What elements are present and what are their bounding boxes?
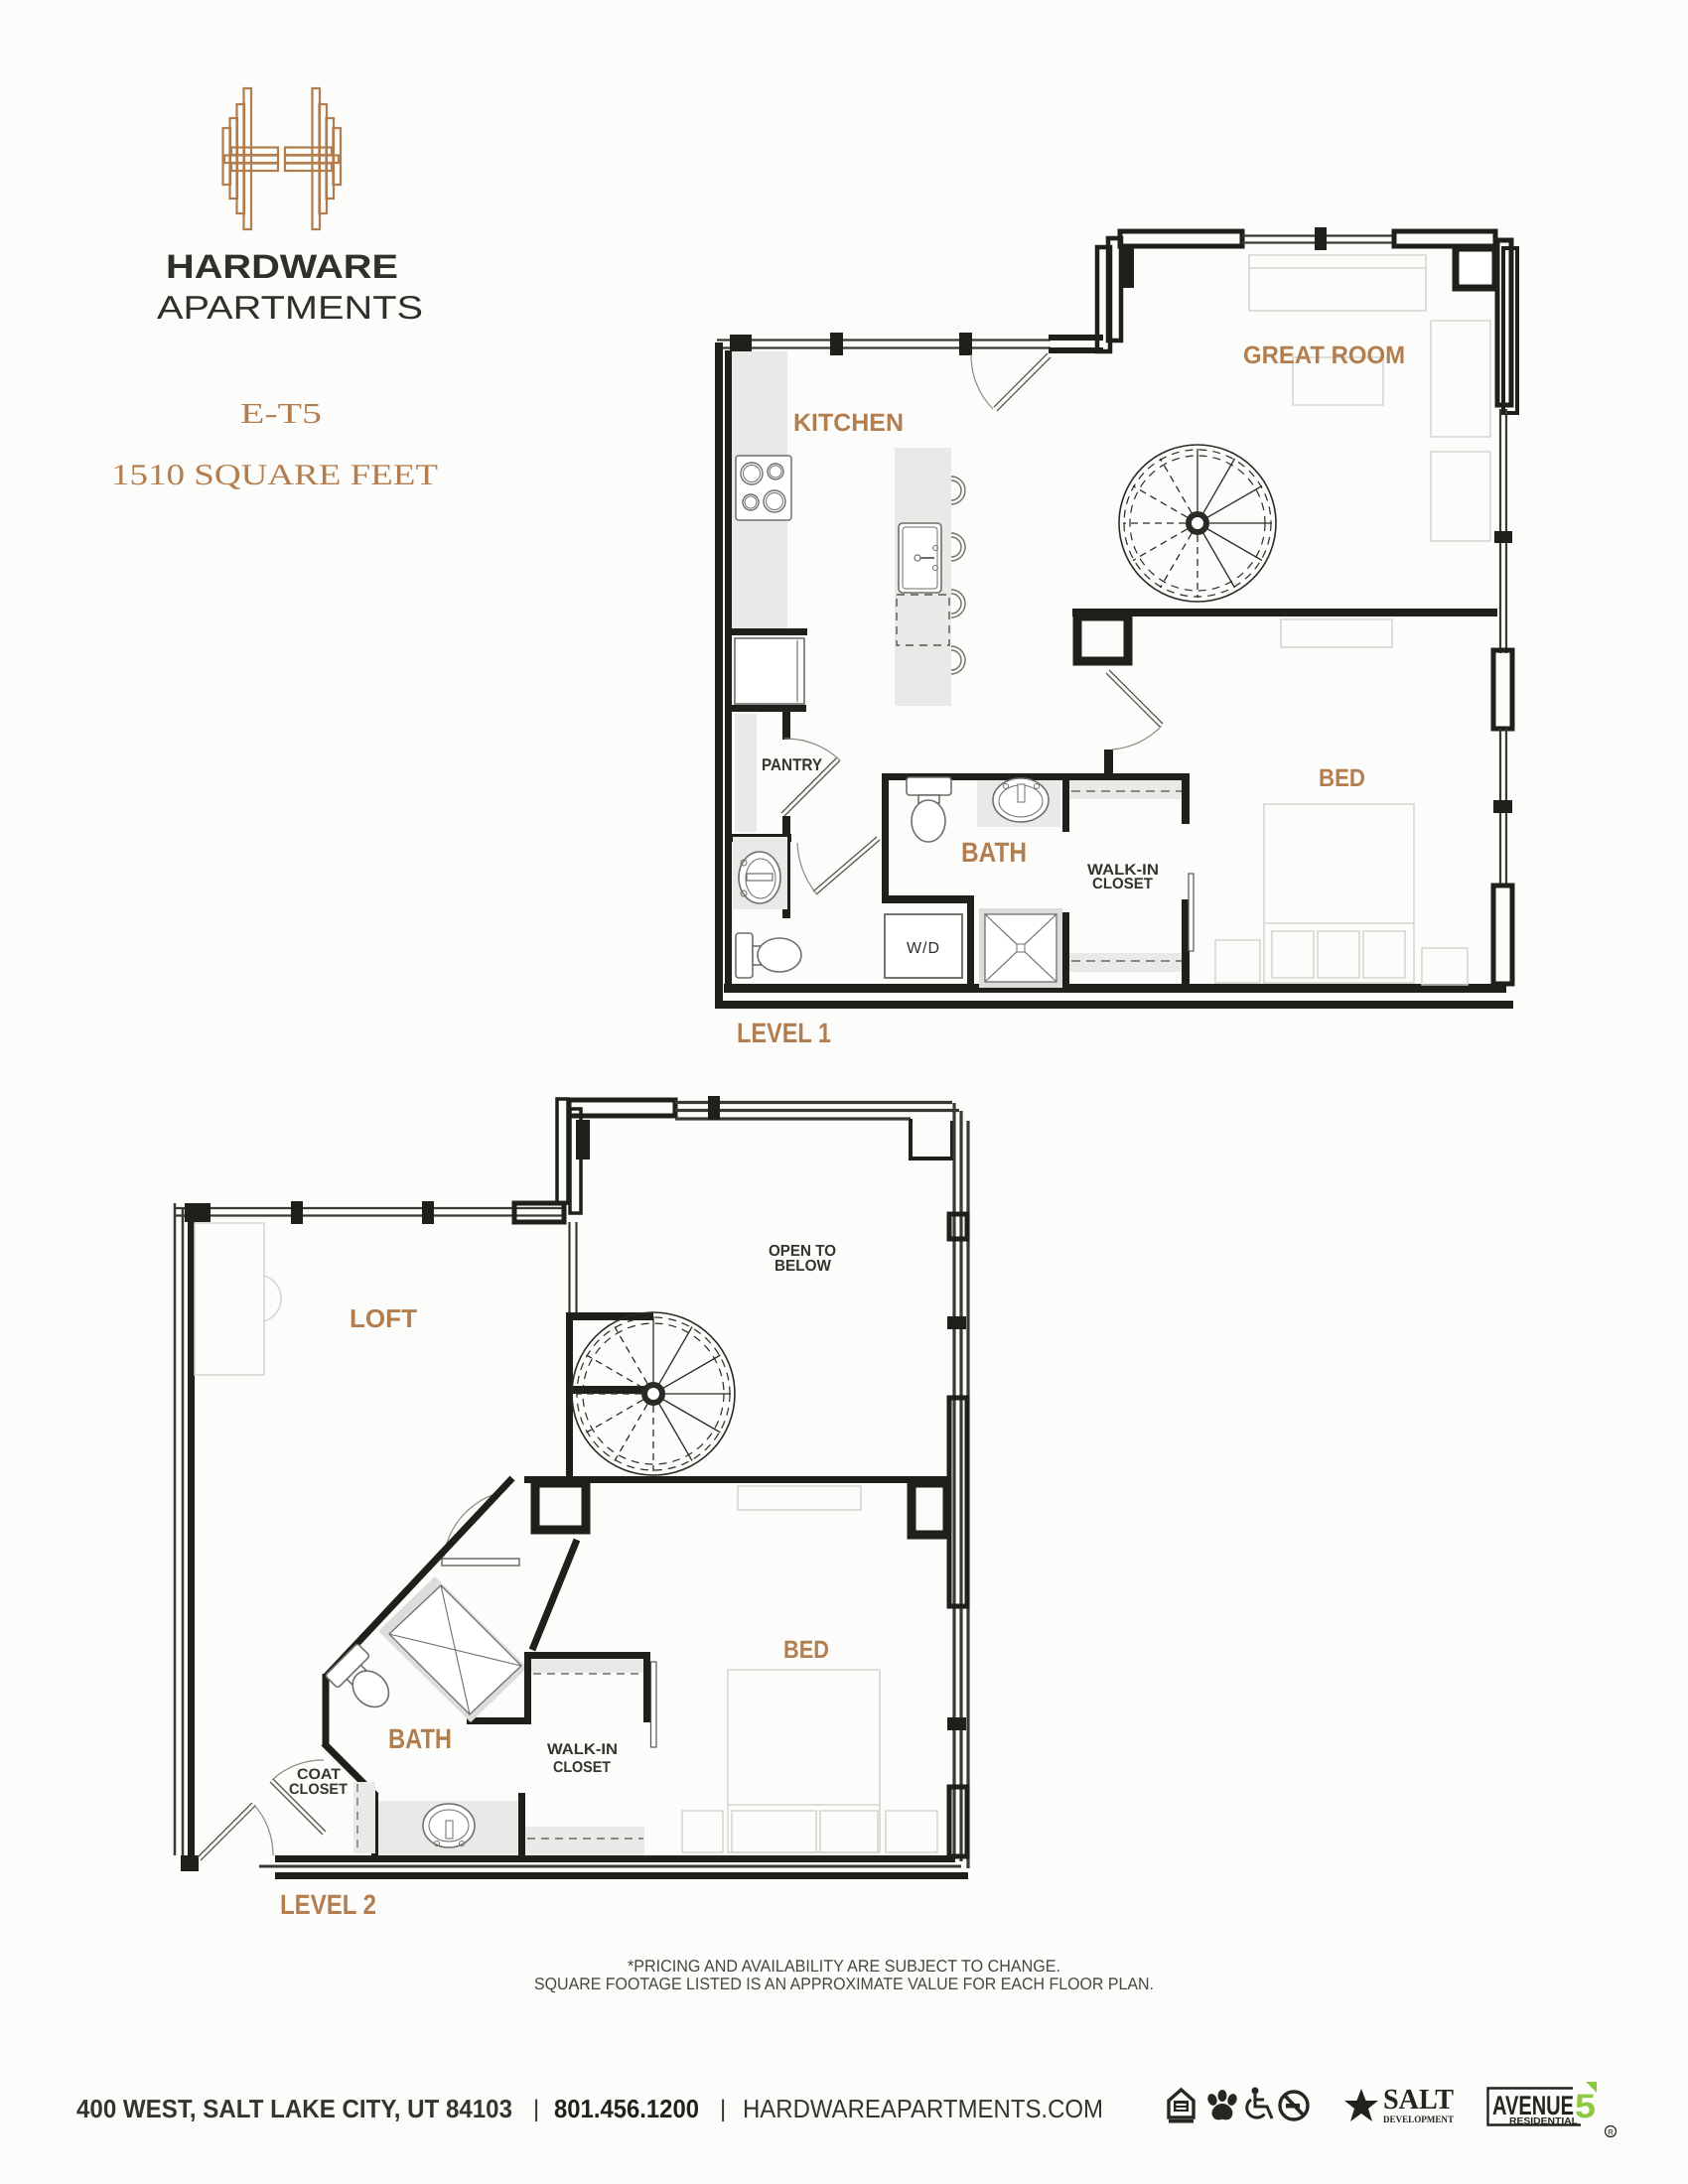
svg-text:RESIDENTIAL: RESIDENTIAL — [1509, 2116, 1578, 2127]
svg-text:*PRICING AND AVAILABILITY ARE: *PRICING AND AVAILABILITY ARE SUBJECT TO… — [628, 1957, 1060, 1976]
svg-text:BED: BED — [1319, 764, 1365, 792]
svg-text:LEVEL 1: LEVEL 1 — [737, 1018, 831, 1048]
svg-text:HARDWARE: HARDWARE — [166, 248, 398, 286]
svg-text:400 WEST, SALT LAKE CITY, UT 8: 400 WEST, SALT LAKE CITY, UT 84103 — [76, 2094, 512, 2123]
svg-text:DEVELOPMENT: DEVELOPMENT — [1383, 2115, 1454, 2125]
svg-text:BATH: BATH — [961, 837, 1027, 868]
svg-text:|: | — [533, 2096, 539, 2122]
svg-text:HARDWAREAPARTMENTS.COM: HARDWAREAPARTMENTS.COM — [743, 2094, 1103, 2123]
svg-text:APARTMENTS: APARTMENTS — [157, 289, 423, 326]
svg-text:LEVEL 2: LEVEL 2 — [280, 1889, 376, 1920]
svg-text:CLOSET: CLOSET — [553, 1759, 611, 1776]
svg-text:BATH: BATH — [388, 1723, 452, 1754]
svg-text:BED: BED — [783, 1636, 829, 1664]
svg-text:801.456.1200: 801.456.1200 — [554, 2094, 699, 2123]
svg-text:CLOSET: CLOSET — [289, 1781, 348, 1798]
svg-text:E-T5: E-T5 — [240, 398, 322, 430]
svg-text:5: 5 — [1575, 2088, 1596, 2125]
svg-text:PANTRY: PANTRY — [762, 755, 823, 774]
svg-text:LOFT: LOFT — [350, 1303, 417, 1333]
svg-text:BELOW: BELOW — [774, 1258, 832, 1275]
svg-text:R: R — [1608, 2128, 1614, 2137]
svg-text:GREAT ROOM: GREAT ROOM — [1243, 341, 1405, 369]
svg-text:SQUARE FOOTAGE LISTED IS AN AP: SQUARE FOOTAGE LISTED IS AN APPROXIMATE … — [534, 1975, 1154, 1993]
svg-text:|: | — [720, 2096, 726, 2122]
svg-text:KITCHEN: KITCHEN — [793, 409, 904, 437]
svg-text:W/D: W/D — [907, 940, 940, 957]
svg-text:1510 SQUARE FEET: 1510 SQUARE FEET — [111, 459, 438, 491]
svg-text:WALK-IN: WALK-IN — [547, 1741, 618, 1758]
svg-text:SALT: SALT — [1383, 2084, 1454, 2116]
svg-text:CLOSET: CLOSET — [1092, 876, 1154, 892]
